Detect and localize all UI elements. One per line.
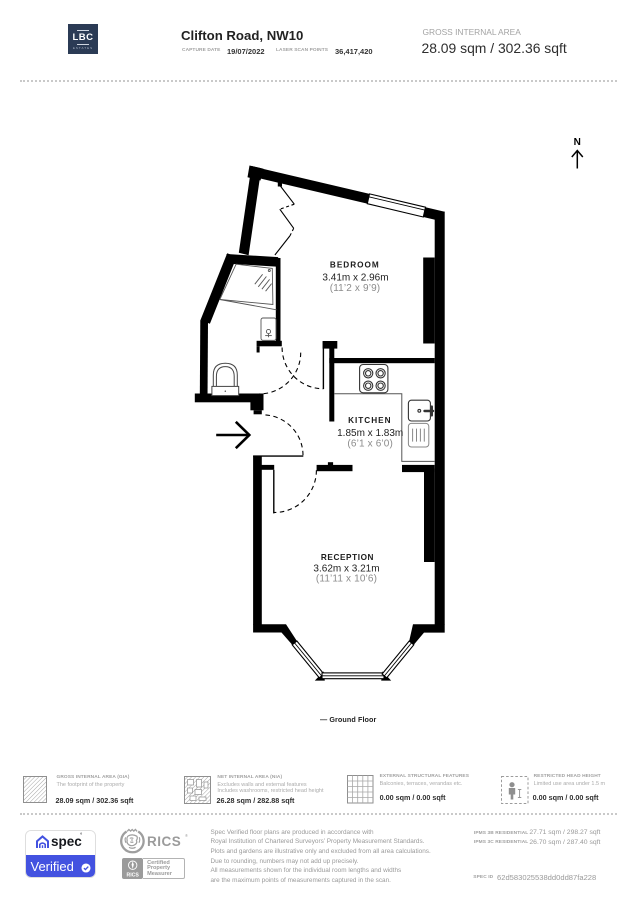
svg-text:®: ® xyxy=(185,833,188,838)
svg-text:3.62m x 3.21m: 3.62m x 3.21m xyxy=(313,563,379,574)
svg-text:(11’11 x 10’6): (11’11 x 10’6) xyxy=(316,574,377,585)
svg-text:— Ground Floor: — Ground Floor xyxy=(320,715,377,724)
svg-text:1.85m x 1.83m: 1.85m x 1.83m xyxy=(337,428,403,439)
svg-text:RICS: RICS xyxy=(147,834,181,849)
svg-text:N: N xyxy=(574,137,581,148)
svg-text:RECEPTION: RECEPTION xyxy=(321,553,374,562)
svg-text:(6’1 x 6’0): (6’1 x 6’0) xyxy=(347,439,393,450)
svg-text:KITCHEN: KITCHEN xyxy=(348,416,391,425)
svg-text:(11’2 x 9’9): (11’2 x 9’9) xyxy=(330,283,381,294)
svg-text:RICS: RICS xyxy=(126,872,139,878)
svg-text:BEDROOM: BEDROOM xyxy=(330,260,380,269)
